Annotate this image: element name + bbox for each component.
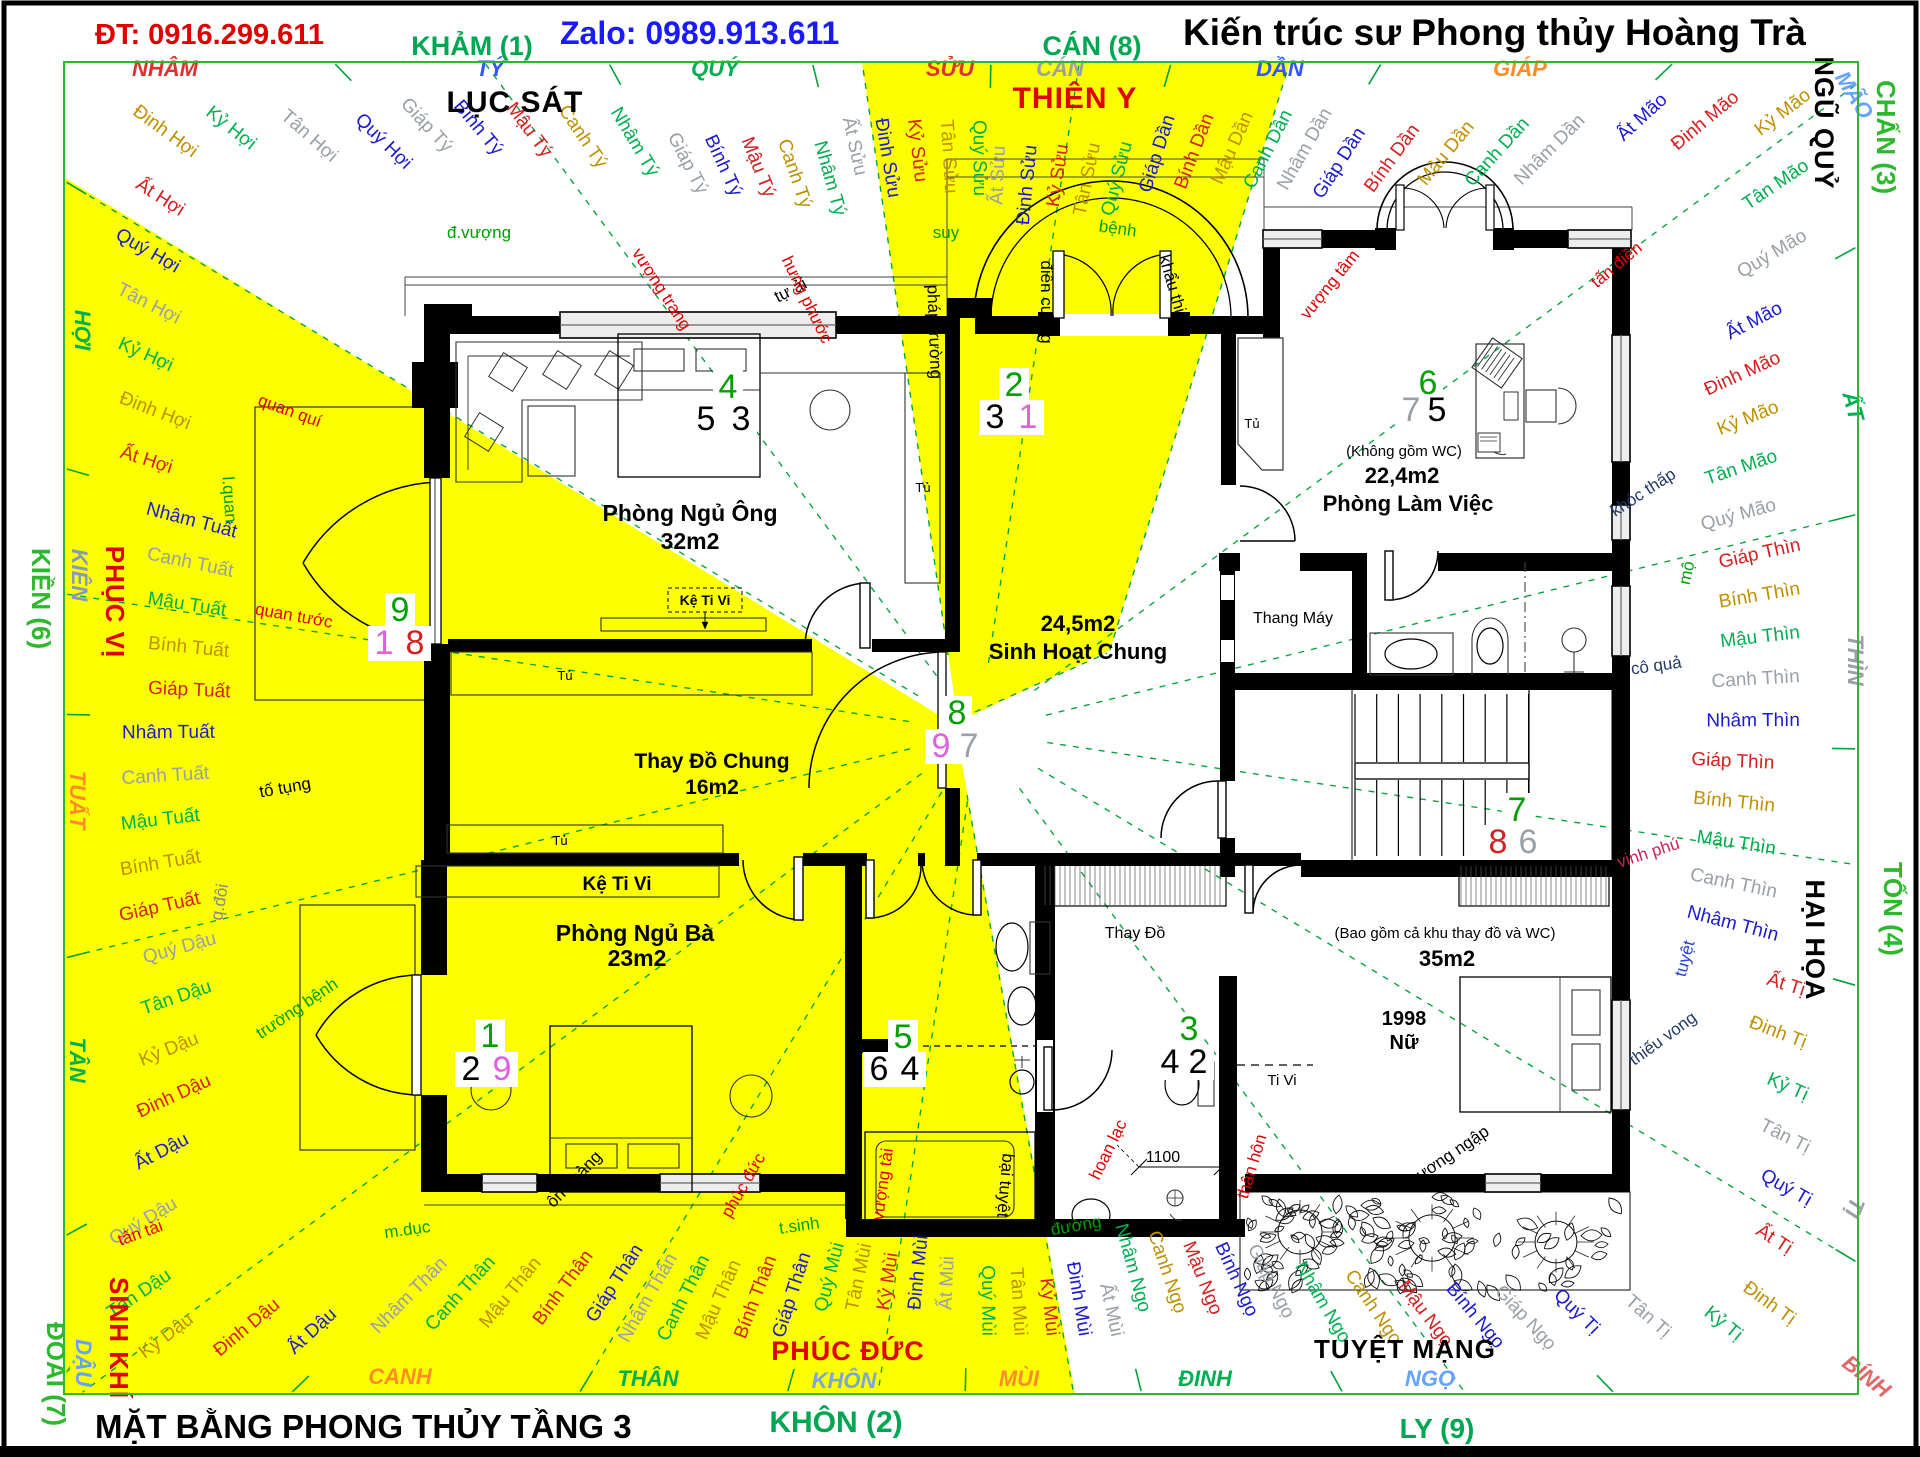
svg-text:PHÚC ĐỨC: PHÚC ĐỨC (771, 1335, 924, 1366)
svg-text:điên cuồng: điên cuồng (1037, 260, 1056, 343)
svg-text:Nhâm Thìn: Nhâm Thìn (1706, 710, 1800, 732)
svg-text:Kệ Ti Vi: Kệ Ti Vi (680, 592, 731, 608)
svg-text:TUẤT: TUẤT (65, 771, 90, 831)
svg-text:KHÔN: KHÔN (812, 1368, 878, 1393)
svg-text:Ất Mùi: Ất Mùi (934, 1256, 958, 1311)
svg-text:(Không gồm WC): (Không gồm WC) (1346, 443, 1462, 460)
svg-text:22,4m2: 22,4m2 (1365, 463, 1440, 488)
svg-text:Quý Mùi: Quý Mùi (977, 1265, 998, 1336)
svg-text:ĐINH: ĐINH (1178, 1366, 1233, 1391)
svg-text:suy: suy (933, 223, 960, 242)
svg-text:LỤC SÁT: LỤC SÁT (447, 85, 584, 119)
svg-text:ĐOÀI (7): ĐOÀI (7) (41, 1322, 71, 1426)
svg-text:THÂN: THÂN (617, 1366, 679, 1391)
svg-text:Tân Mùi: Tân Mùi (1006, 1267, 1031, 1337)
svg-text:Sinh Hoạt Chung: Sinh Hoạt Chung (989, 639, 1167, 664)
svg-text:NHÂM: NHÂM (132, 56, 199, 81)
svg-text:SINH KHÍ: SINH KHÍ (104, 1277, 134, 1399)
svg-text:ĐT: 0916.299.611: ĐT: 0916.299.611 (95, 19, 324, 51)
svg-text:MÙI: MÙI (999, 1366, 1040, 1391)
svg-text:Phòng Ngủ Ông: Phòng Ngủ Ông (602, 499, 777, 526)
svg-text:TÂN: TÂN (65, 1037, 90, 1083)
svg-text:Thay Đồ: Thay Đồ (1105, 925, 1166, 942)
svg-text:6: 6 (870, 1050, 889, 1088)
svg-text:DẬU: DẬU (71, 1339, 96, 1388)
svg-text:l.quan: l.quan (218, 476, 240, 524)
svg-text:Phòng Ngủ Bà: Phòng Ngủ Bà (556, 920, 715, 946)
svg-text:CHẤN (3): CHẤN (3) (1871, 80, 1901, 194)
svg-text:Giáp Tuất: Giáp Tuất (148, 678, 232, 703)
svg-text:TUYỆT MẠNG: TUYỆT MẠNG (1314, 1334, 1496, 1364)
svg-text:LY (9): LY (9) (1400, 1413, 1475, 1444)
svg-text:4: 4 (901, 1050, 920, 1088)
svg-text:5: 5 (1428, 391, 1447, 429)
svg-text:Kiến trúc sư Phong thủy Hoàng: Kiến trúc sư Phong thủy Hoàng Trà (1183, 12, 1806, 53)
svg-text:4: 4 (1161, 1043, 1180, 1081)
svg-text:1: 1 (1019, 398, 1038, 436)
svg-text:Tủ: Tủ (552, 833, 567, 848)
svg-text:pháp trường: pháp trường (923, 284, 945, 379)
svg-text:5: 5 (697, 400, 716, 438)
svg-text:8: 8 (1489, 823, 1508, 861)
svg-text:Thay Đồ Chung: Thay Đồ Chung (634, 750, 789, 773)
svg-text:PHỤC VỊ: PHỤC VỊ (100, 546, 130, 658)
svg-text:THIÊN Y: THIÊN Y (1013, 81, 1138, 115)
svg-text:đ.vượng: đ.vượng (447, 223, 511, 242)
svg-text:Tủ: Tủ (1244, 416, 1259, 431)
svg-text:9: 9 (493, 1050, 512, 1088)
svg-text:KHẢM (1): KHẢM (1) (411, 29, 533, 61)
svg-text:Tủ: Tủ (915, 480, 930, 495)
svg-text:3: 3 (986, 398, 1005, 436)
svg-text:NGỌ: NGỌ (1405, 1366, 1455, 1391)
svg-text:(Bao gồm cả khu thay đồ và WC): (Bao gồm cả khu thay đồ và WC) (1335, 925, 1556, 942)
svg-text:CANH: CANH (368, 1364, 433, 1389)
svg-text:2: 2 (1189, 1043, 1208, 1081)
svg-text:Kệ Ti Vi: Kệ Ti Vi (583, 874, 652, 895)
svg-text:23m2: 23m2 (608, 945, 667, 971)
svg-text:Quý Sửu: Quý Sửu (968, 120, 990, 196)
svg-text:3: 3 (732, 400, 751, 438)
svg-text:16m2: 16m2 (685, 776, 739, 799)
svg-text:Nhâm Tuất: Nhâm Tuất (122, 722, 216, 744)
svg-text:SỬU: SỬU (926, 56, 975, 81)
svg-text:MẶT BẰNG PHONG THỦY TẦNG 3: MẶT BẰNG PHONG THỦY TẦNG 3 (95, 1408, 632, 1445)
svg-text:Giáp Thìn: Giáp Thìn (1691, 749, 1775, 774)
svg-text:2: 2 (462, 1050, 481, 1088)
svg-text:TỐN (4): TỐN (4) (1878, 862, 1908, 956)
svg-text:KIỀN (6): KIỀN (6) (26, 548, 56, 649)
svg-text:Tân Sửu: Tân Sửu (936, 119, 961, 194)
svg-text:GIÁP: GIÁP (1493, 56, 1547, 81)
svg-text:KIÊN: KIÊN (67, 549, 92, 603)
svg-text:Phòng Làm Việc: Phòng Làm Việc (1323, 491, 1494, 516)
svg-text:1: 1 (375, 624, 394, 662)
svg-text:Nữ: Nữ (1390, 1032, 1419, 1054)
svg-text:Ti Vi: Ti Vi (1267, 1072, 1296, 1089)
svg-text:HẠI HỌA: HẠI HỌA (1800, 880, 1830, 1001)
svg-text:Thang Máy: Thang Máy (1253, 610, 1333, 627)
svg-text:Tủ: Tủ (557, 668, 572, 683)
svg-text:KHÔN (2): KHÔN (2) (769, 1405, 902, 1439)
svg-text:HỢI: HỢI (70, 310, 95, 351)
svg-text:QUÝ: QUÝ (691, 56, 741, 81)
svg-text:1100: 1100 (1146, 1149, 1181, 1166)
svg-text:Zalo: 0989.913.611: Zalo: 0989.913.611 (560, 15, 839, 51)
svg-text:7: 7 (1402, 391, 1421, 429)
svg-text:THÌN: THÌN (1843, 634, 1868, 686)
svg-text:6: 6 (1519, 823, 1538, 861)
svg-text:7: 7 (960, 727, 979, 765)
svg-text:1998: 1998 (1382, 1008, 1427, 1030)
svg-text:35m2: 35m2 (1419, 946, 1475, 971)
svg-text:NGŨ QUỶ: NGŨ QUỶ (1809, 56, 1841, 189)
svg-text:DẦN: DẦN (1256, 56, 1305, 81)
svg-text:32m2: 32m2 (661, 528, 720, 554)
svg-text:CÁN (8): CÁN (8) (1043, 30, 1142, 61)
svg-text:9: 9 (932, 727, 951, 765)
svg-text:8: 8 (406, 624, 425, 662)
svg-text:24,5m2: 24,5m2 (1041, 611, 1116, 636)
